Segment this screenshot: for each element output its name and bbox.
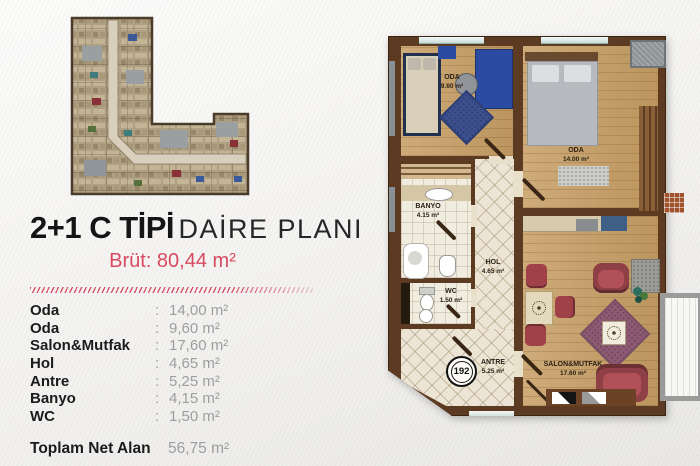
kitchen-sink-unit [601,216,627,231]
row-value: 9,60 m² [169,320,220,337]
bed-double [525,52,598,144]
slide-canvas: 2+1 C TİPİ DAİRE PLANI Brüt: 80,44 m² Od… [0,0,700,466]
plan-walls: ODA 9.60 m² ODA 14.00 m² BANYO 4.15 m² W… [388,36,666,416]
terrace-top-right [630,40,666,68]
bed-single [403,53,441,136]
wc-sink [419,309,433,323]
area-row-hol: Hol : 4,65 m² [30,355,330,373]
row-separator: : [155,337,169,354]
row-label: Salon&Mutfak [30,337,155,354]
area-row-wc: WC : 1,50 m² [30,408,330,426]
door-opening-oda-big [513,171,523,197]
row-label: Oda [30,302,155,319]
balcony-right [660,293,700,401]
window-top-left [419,37,484,44]
total-label: Toplam Net Alan [30,440,168,458]
bath-sink [425,188,453,201]
row-value: 4,15 m² [169,390,220,407]
gross-area-subtitle: Brüt: 80,44 m² [0,250,345,273]
area-row-salon: Salon&Mutfak : 17,60 m² [30,337,330,355]
room-hol [475,159,514,353]
door-opening-wc [471,289,477,307]
rug-gray [558,166,609,186]
window-top-right [541,37,608,44]
row-label: WC [30,408,155,425]
armchair [593,263,629,293]
area-row-oda2: Oda : 9,60 m² [30,320,330,338]
row-label: Antre [30,373,155,390]
window-bottom [469,411,514,418]
table-motif [532,301,546,315]
dining-chair [555,296,575,318]
site-plan-drawing [64,10,259,196]
row-separator: : [155,390,169,407]
area-row-oda1: Oda : 14,00 m² [30,302,330,320]
dining-chair [526,264,547,288]
apartment-floor-plan: ODA 9.60 m² ODA 14.00 m² BANYO 4.15 m² W… [388,36,666,416]
bathtub-basin [408,251,422,265]
row-label: Oda [30,320,155,337]
dining-chair [525,324,546,346]
coffee-table [602,321,626,345]
page-title: 2+1 C TİPİ DAİRE PLANI [30,210,375,246]
row-label: Banyo [30,390,155,407]
unit-number-badge: 192 [446,356,477,387]
cabinet-panel [552,392,576,404]
wardrobe [639,106,658,211]
hall-wardrobe [401,164,471,179]
pillow [564,65,591,82]
area-row-banyo: Banyo : 4,15 m² [30,390,330,408]
total-value: 56,75 m² [168,440,229,458]
window-left-wall [389,61,395,136]
row-label: Hol [30,355,155,372]
shelf-unit [438,46,456,59]
row-value: 1,50 m² [169,408,220,425]
door-opening-banyo [471,205,477,227]
desk-unit [475,49,513,109]
stove [576,219,598,231]
pillow [532,65,559,82]
row-separator: : [155,408,169,425]
room-wc [401,283,471,324]
page-title-type: 2+1 C TİPİ [30,210,174,245]
wc-shaft [401,283,410,324]
row-value: 17,60 m² [169,337,228,354]
cabinet-panel [582,392,606,404]
bathtub [403,243,429,279]
area-table: Oda : 14,00 m² Oda : 9,60 m² Salon&Mutfa… [30,302,330,425]
row-value: 5,25 m² [169,373,220,390]
toilet-banyo [439,255,456,277]
unit-number: 192 [451,361,473,383]
window-left-banyo [389,187,395,232]
row-separator: : [155,373,169,390]
row-value: 4,65 m² [169,355,220,372]
total-net-area-row: Toplam Net Alan 56,75 m² [30,440,350,458]
plant [635,296,642,303]
row-separator: : [155,320,169,337]
dining-table [525,291,553,325]
hatched-divider [30,287,313,293]
pillow [423,58,436,70]
table-motif [607,326,621,340]
kitchen-cabinets [546,389,636,406]
brick-shaft [664,193,684,213]
pillow [408,58,421,70]
row-separator: : [155,355,169,372]
bed-headboard [525,52,598,61]
site-plan-thumbnail [64,10,259,196]
armchair-cushion [598,270,624,288]
area-row-antre: Antre : 5,25 m² [30,372,330,390]
page-title-suffix: DAİRE PLANI [179,214,364,244]
row-value: 14,00 m² [169,302,228,319]
row-separator: : [155,302,169,319]
